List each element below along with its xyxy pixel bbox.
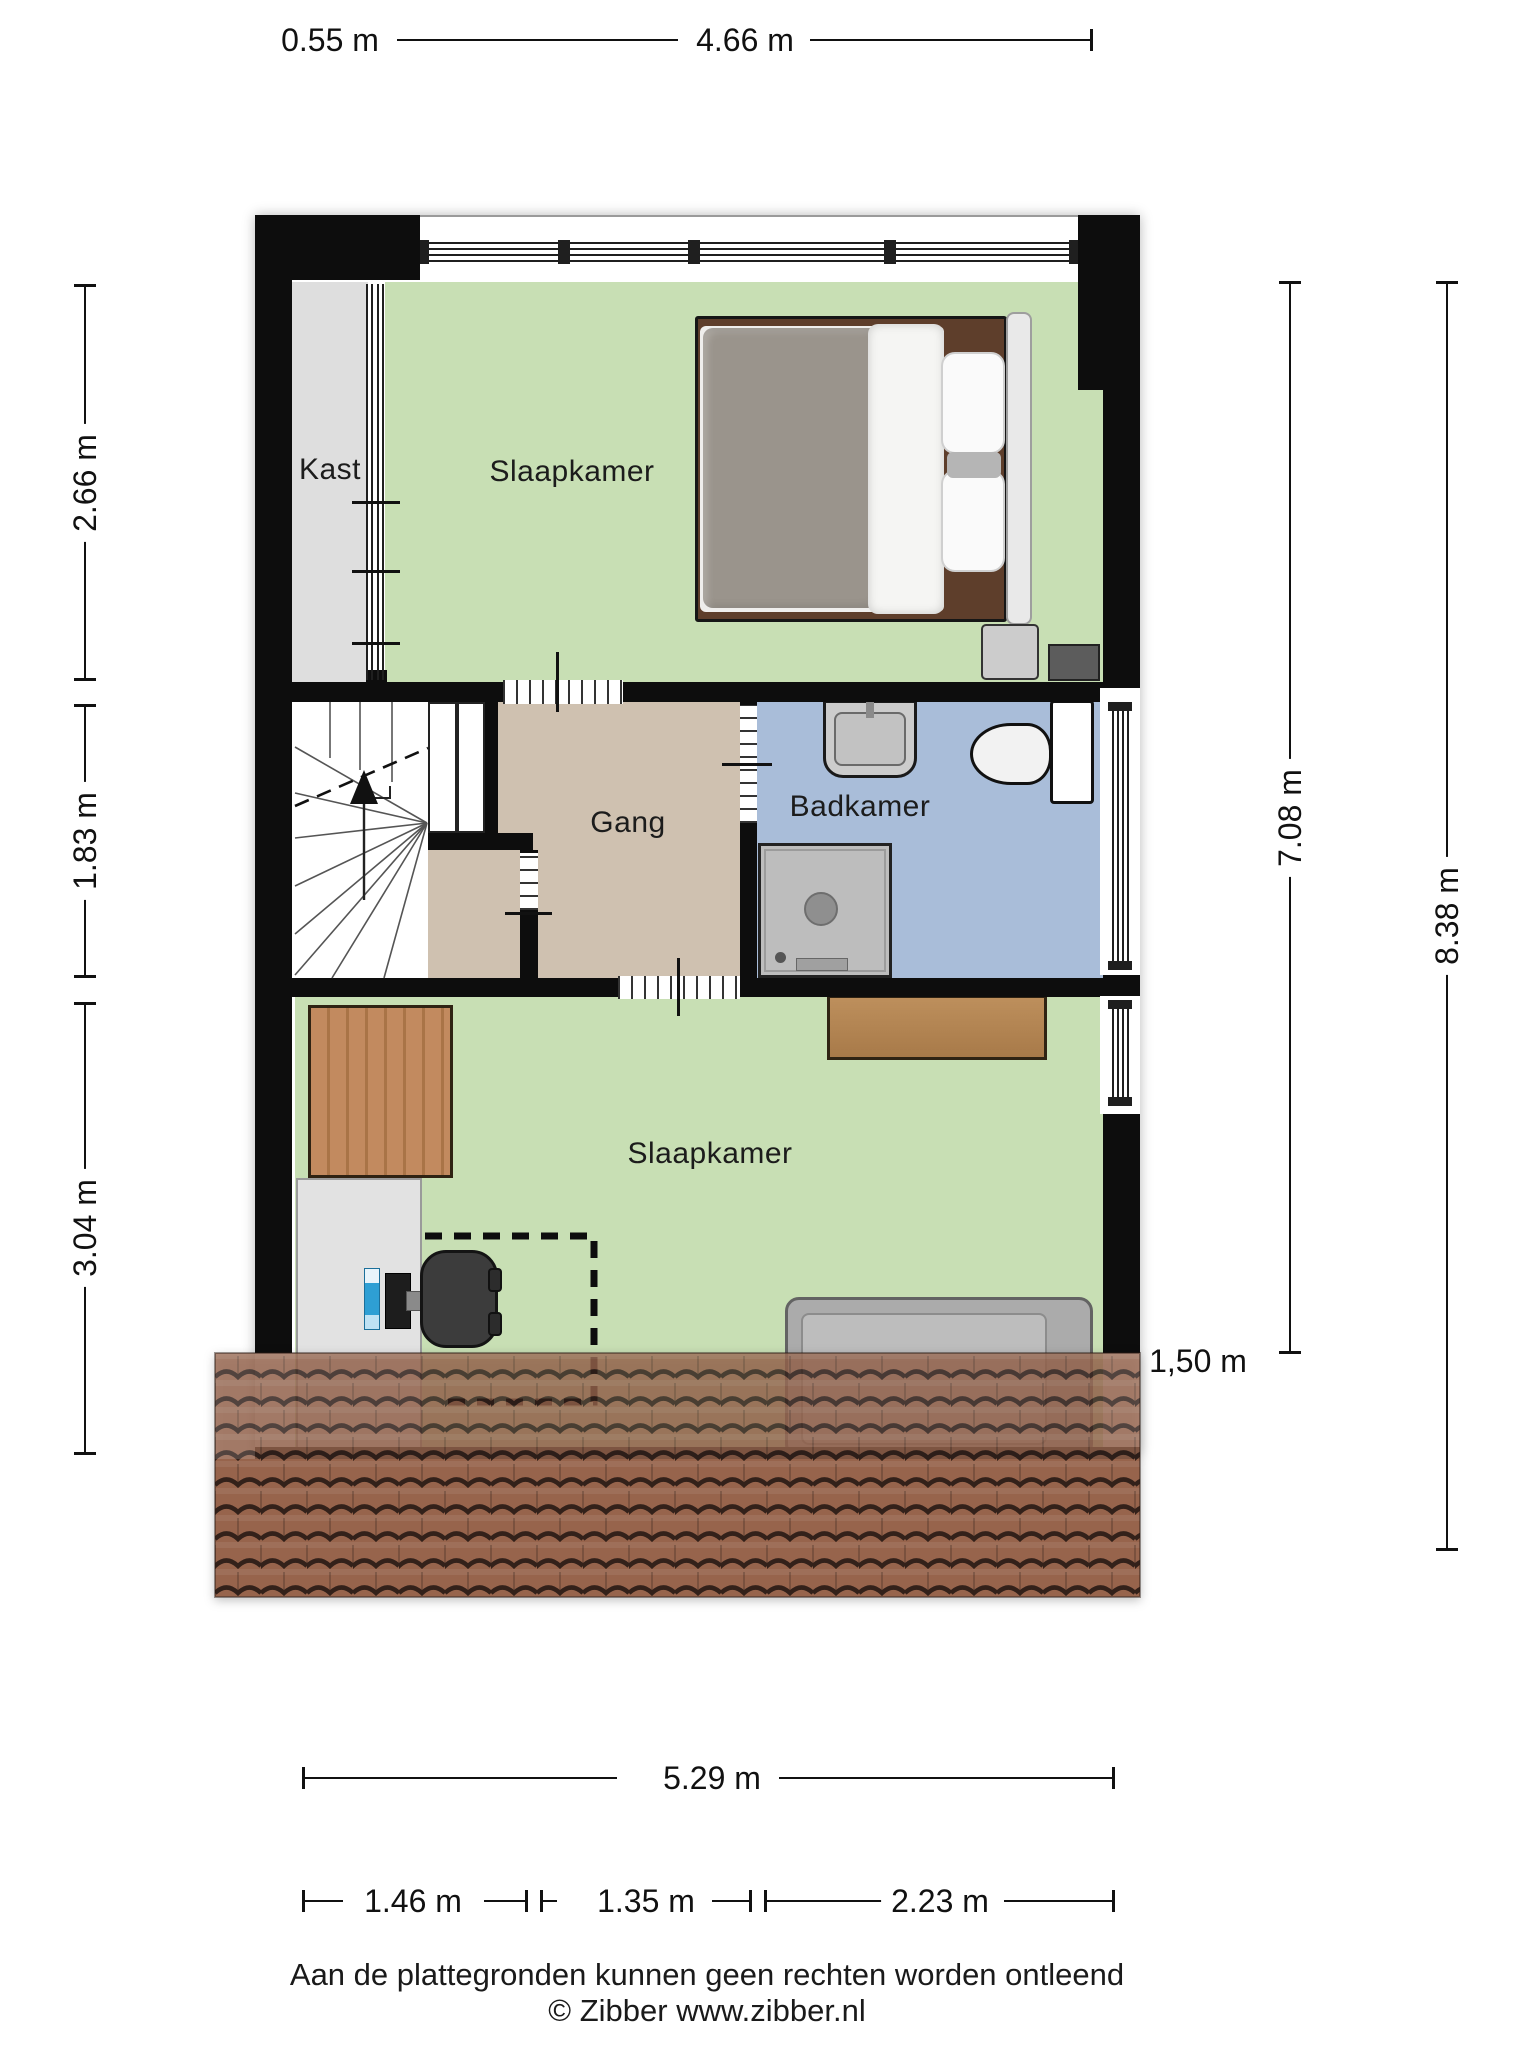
dim-tick — [74, 678, 96, 681]
dim-line — [397, 39, 678, 41]
dim-tick — [749, 1890, 752, 1912]
shower-head-icon — [804, 892, 838, 926]
sliding-door-track — [377, 284, 379, 680]
dim-tick — [525, 1890, 528, 1912]
window-top-endcap — [420, 240, 429, 264]
window-top-glazing — [428, 242, 1070, 244]
window-bathroom-glazing — [1112, 706, 1114, 966]
dim-tick — [1090, 29, 1093, 51]
desk-book — [364, 1268, 380, 1330]
wood-table — [308, 1005, 453, 1178]
dim-line — [484, 1900, 527, 1902]
shower-fixture — [796, 958, 848, 971]
window-bedroom-glazing — [1127, 1006, 1129, 1102]
room-label-bathroom: Badkamer — [790, 792, 931, 822]
office-chair-armrest — [488, 1312, 502, 1336]
wall-right-lower — [1103, 1112, 1140, 1353]
dim-tick — [1436, 281, 1458, 284]
bed-headboard — [1006, 312, 1032, 625]
bed-pillow — [941, 470, 1005, 572]
dim-tick — [74, 1452, 96, 1455]
wall-right-upper — [1103, 390, 1140, 690]
office-chair-armrest — [488, 1268, 502, 1292]
window-bathroom-glazing — [1117, 706, 1119, 966]
dim-left-0: 2.66 m — [69, 424, 101, 542]
dim-left-2: 3.04 m — [69, 1169, 101, 1287]
window-bathroom-endcap — [1108, 702, 1132, 711]
dim-line — [303, 1777, 617, 1779]
dim-tick — [1436, 1548, 1458, 1551]
door-hall-closet — [520, 853, 538, 910]
dim-tick — [74, 975, 96, 978]
floorplan-page: Kast Slaapkamer Gang Badkamer Slaapkamer… — [0, 0, 1536, 2048]
dim-right-1: 8.38 m — [1431, 857, 1463, 975]
room-label-closet: Kast — [299, 455, 361, 485]
dim-seg-2: 2.23 m — [881, 1885, 999, 1917]
dim-tick — [74, 1002, 96, 1005]
dim-seg-0: 1.46 m — [354, 1885, 472, 1917]
dim-tick — [1112, 1767, 1115, 1789]
window-top-glazing — [428, 260, 1070, 262]
bed-cushion — [947, 452, 1001, 478]
bed-blanket — [703, 328, 883, 608]
dim-tick — [1279, 1351, 1301, 1354]
sink-basin — [834, 712, 906, 766]
window-bedroom-glazing — [1112, 1006, 1114, 1102]
dim-line — [303, 1900, 343, 1902]
footer-disclaimer: Aan de plattegronden kunnen geen rechten… — [290, 1957, 1124, 1993]
dim-tick — [74, 284, 96, 287]
bed-sheet-fold — [868, 324, 944, 614]
dim-bottom-total: 5.29 m — [653, 1762, 771, 1794]
door-tick — [505, 912, 552, 915]
toilet-bowl — [970, 723, 1052, 785]
dim-tick — [1279, 281, 1301, 284]
wall-right-mid — [1103, 973, 1140, 998]
window-bedroom-glazing — [1117, 1006, 1119, 1102]
dim-tick — [74, 704, 96, 707]
wall-left — [255, 218, 292, 1353]
window-bedroom-endcap — [1108, 1000, 1132, 1009]
dim-right-0: 7.08 m — [1274, 759, 1306, 877]
roof — [215, 1353, 1140, 1597]
roof-translucent-upper — [215, 1353, 1140, 1459]
window-top-glazing — [428, 254, 1070, 256]
door-tick — [677, 958, 680, 1016]
dim-roof-height: 1,50 m — [1139, 1345, 1257, 1377]
window-bathroom-glazing — [1122, 706, 1124, 966]
sliding-door-track — [382, 284, 384, 680]
sink-faucet-icon — [866, 700, 874, 718]
stairwell — [295, 702, 428, 978]
window-top-mullion — [688, 240, 700, 264]
stair-door-leaf — [428, 702, 457, 833]
room-label-hallway: Gang — [590, 808, 665, 838]
room-label-bedroom-bottom: Slaapkamer — [627, 1139, 792, 1169]
wall-divider-top — [292, 682, 1103, 702]
wall-stair-lower — [428, 833, 533, 850]
dim-line — [779, 1777, 1114, 1779]
window-top-mullion — [558, 240, 570, 264]
window-top-mullion — [884, 240, 896, 264]
window-bedroom-endcap — [1108, 1097, 1132, 1106]
nightstand — [981, 624, 1039, 680]
window-top-glazing — [428, 248, 1070, 250]
wall-stair-post — [485, 702, 498, 845]
dim-top-0: 0.55 m — [271, 24, 389, 56]
room-label-bedroom-top: Slaapkamer — [489, 457, 654, 487]
door-hall-top — [503, 680, 623, 704]
dresser-box — [1048, 644, 1100, 681]
footer-copyright: © Zibber www.zibber.nl — [548, 1993, 865, 2029]
office-chair — [420, 1250, 498, 1348]
dim-line — [712, 1900, 751, 1902]
dim-tick — [1112, 1890, 1115, 1912]
sliding-door-tick — [352, 642, 400, 645]
door-tick — [722, 763, 772, 766]
door-tick — [556, 652, 559, 712]
dim-top-1: 4.66 m — [686, 24, 804, 56]
dim-left-1: 1.83 m — [69, 782, 101, 900]
wall-top-right-corner — [1078, 215, 1140, 390]
window-bathroom-pocket — [1100, 688, 1140, 975]
window-bathroom-endcap — [1108, 961, 1132, 970]
shower-drain — [775, 952, 786, 963]
wood-shelf — [827, 995, 1047, 1060]
window-top-endcap — [1069, 240, 1078, 264]
dim-line — [1004, 1900, 1114, 1902]
dim-line — [541, 1900, 557, 1902]
dim-seg-1: 1.35 m — [587, 1885, 705, 1917]
sliding-door-track — [371, 284, 373, 680]
keyboard — [406, 1291, 421, 1311]
wall-top-left — [255, 215, 420, 280]
sliding-door-tick — [352, 501, 400, 504]
window-bedroom-glazing — [1122, 1006, 1124, 1102]
bed-pillow — [941, 352, 1005, 454]
stair-door-leaf — [457, 702, 485, 833]
sliding-door-tick — [352, 570, 400, 573]
dim-line — [810, 39, 1092, 41]
window-bathroom-glazing — [1127, 706, 1129, 966]
sliding-door-track — [366, 284, 368, 680]
roof-opaque-lower — [215, 1459, 1140, 1597]
toilet-tank — [1050, 700, 1094, 804]
